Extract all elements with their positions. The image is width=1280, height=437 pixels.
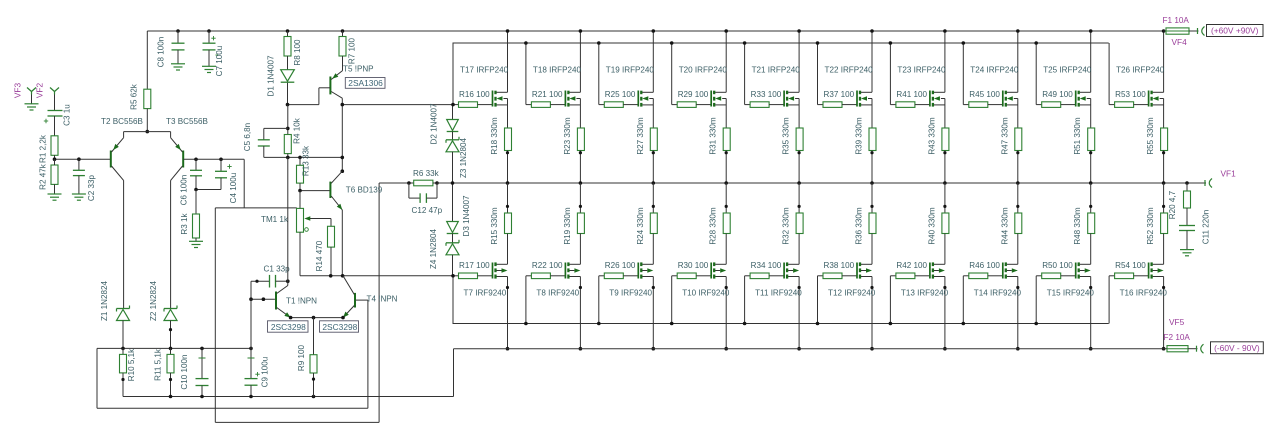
svg-text:T3 BC556B: T3 BC556B (166, 117, 208, 126)
svg-text:R36 330m: R36 330m (855, 207, 864, 245)
svg-text:T15 IRF9240: T15 IRF9240 (1047, 289, 1095, 298)
svg-text:2SC3298: 2SC3298 (322, 322, 357, 332)
svg-text:R5 62k: R5 62k (129, 83, 138, 110)
svg-text:C2 33p: C2 33p (87, 174, 96, 201)
svg-text:R48 330m: R48 330m (1073, 207, 1082, 245)
svg-text:R2 47k: R2 47k (39, 163, 48, 190)
svg-text:R28 330m: R28 330m (709, 207, 718, 245)
svg-text:C5 6,8n: C5 6,8n (243, 123, 252, 151)
svg-text:R41 100: R41 100 (896, 90, 927, 99)
svg-text:T14 IRF9240: T14 IRF9240 (974, 289, 1022, 298)
svg-text:R37 100: R37 100 (824, 90, 855, 99)
svg-text:Z3 1N2804: Z3 1N2804 (459, 137, 468, 178)
svg-text:R14 470: R14 470 (315, 240, 324, 271)
svg-text:T1 !NPN: T1 !NPN (286, 297, 317, 306)
svg-text:R23 330m: R23 330m (563, 117, 572, 155)
svg-text:R16 100: R16 100 (459, 90, 490, 99)
svg-text:T25 IRFP240: T25 IRFP240 (1043, 66, 1092, 75)
svg-text:T10 IRF9240: T10 IRF9240 (682, 289, 730, 298)
svg-text:VF3: VF3 (13, 83, 23, 99)
svg-text:R30 100: R30 100 (678, 261, 709, 270)
svg-text:(+60V +90V): (+60V +90V) (1211, 26, 1259, 36)
svg-text:R40 330m: R40 330m (927, 207, 936, 245)
svg-text:F1 10A: F1 10A (1163, 16, 1190, 25)
svg-text:R49 100: R49 100 (1042, 90, 1073, 99)
svg-text:T8 IRF9240: T8 IRF9240 (536, 289, 579, 298)
svg-text:R55 330m: R55 330m (1146, 117, 1155, 155)
svg-text:R18 330m: R18 330m (490, 117, 499, 155)
svg-text:R42 100: R42 100 (896, 261, 927, 270)
svg-text:R38 100: R38 100 (824, 261, 855, 270)
svg-text:C12 47p: C12 47p (412, 206, 443, 215)
svg-text:R11 5,1k: R11 5,1k (154, 348, 163, 381)
svg-text:T9 IRF9240: T9 IRF9240 (609, 289, 652, 298)
svg-text:R10 5,1k: R10 5,1k (127, 348, 136, 381)
svg-text:R29 100: R29 100 (678, 90, 709, 99)
svg-text:R52 330m: R52 330m (1146, 207, 1155, 245)
svg-text:D3 1N4007: D3 1N4007 (462, 195, 471, 236)
svg-text:T12 IRF9240: T12 IRF9240 (828, 289, 876, 298)
svg-text:T22 IRFP240: T22 IRFP240 (825, 66, 874, 75)
svg-text:R6 33k: R6 33k (413, 169, 440, 178)
svg-text:C11 220n: C11 220n (1202, 210, 1211, 245)
svg-text:R22 100: R22 100 (532, 261, 563, 270)
svg-text:T4 !NPN: T4 !NPN (367, 295, 398, 304)
svg-text:VF1: VF1 (1221, 169, 1237, 179)
svg-text:R21 100: R21 100 (532, 90, 563, 99)
svg-text:R27 330m: R27 330m (636, 117, 645, 155)
svg-text:T16 IRF9240: T16 IRF9240 (1120, 289, 1168, 298)
svg-text:R34 100: R34 100 (751, 261, 782, 270)
svg-text:R43 330m: R43 330m (927, 117, 936, 155)
svg-text:TM1 1k: TM1 1k (261, 215, 289, 224)
svg-text:C1 33p: C1 33p (264, 265, 291, 274)
svg-text:R51 330m: R51 330m (1073, 117, 1082, 155)
svg-text:Z4 1N2804: Z4 1N2804 (429, 228, 438, 269)
svg-text:R46 100: R46 100 (969, 261, 1000, 270)
svg-text:R53 100: R53 100 (1115, 90, 1146, 99)
svg-text:R24 330m: R24 330m (636, 207, 645, 245)
svg-text:C7 100u: C7 100u (215, 46, 224, 77)
svg-text:R44 330m: R44 330m (1000, 207, 1009, 245)
svg-text:VF4: VF4 (1172, 37, 1188, 47)
svg-text:R3 1k: R3 1k (180, 212, 189, 234)
svg-text:Z1 1N2824: Z1 1N2824 (100, 280, 109, 321)
svg-text:C3 1u: C3 1u (63, 104, 72, 126)
svg-text:R1 2,2k: R1 2,2k (39, 134, 48, 163)
svg-text:T18 IRFP240: T18 IRFP240 (533, 66, 582, 75)
svg-text:C6 100n: C6 100n (180, 175, 189, 206)
svg-text:R26 100: R26 100 (605, 261, 636, 270)
svg-text:T24 IRFP240: T24 IRFP240 (970, 66, 1019, 75)
svg-text:Z2 1N2824: Z2 1N2824 (149, 280, 158, 321)
svg-text:R4 10k: R4 10k (293, 117, 302, 144)
svg-text:T11 IRF9240: T11 IRF9240 (755, 289, 802, 298)
svg-text:T13 IRF9240: T13 IRF9240 (901, 289, 949, 298)
svg-text:2SA1306: 2SA1306 (348, 78, 383, 88)
svg-text:R17 100: R17 100 (459, 261, 490, 270)
svg-text:D2 1N4007: D2 1N4007 (430, 103, 439, 144)
svg-text:C10 100n: C10 100n (180, 354, 189, 389)
svg-text:R13 33k: R13 33k (302, 145, 311, 176)
svg-text:T17 IRFP240: T17 IRFP240 (460, 66, 509, 75)
svg-text:R25 100: R25 100 (605, 90, 636, 99)
svg-text:R20 4,7: R20 4,7 (1168, 190, 1177, 219)
svg-text:VF5: VF5 (1169, 317, 1185, 327)
svg-text:R9 100: R9 100 (297, 344, 306, 371)
svg-text:D1 1N4007: D1 1N4007 (267, 55, 276, 96)
svg-text:R39 330m: R39 330m (855, 117, 864, 155)
svg-text:T23 IRFP240: T23 IRFP240 (897, 66, 946, 75)
svg-text:F2 10A: F2 10A (1164, 333, 1191, 342)
svg-text:VF2: VF2 (35, 83, 45, 99)
svg-text:T19 IRFP240: T19 IRFP240 (606, 66, 655, 75)
svg-text:T21 IRFP240: T21 IRFP240 (752, 66, 801, 75)
svg-text:R31 330m: R31 330m (709, 117, 718, 155)
svg-text:R54 100: R54 100 (1115, 261, 1146, 270)
svg-text:C8 100n: C8 100n (157, 37, 166, 68)
svg-text:T6 BD139: T6 BD139 (346, 186, 383, 195)
svg-text:C4 100u: C4 100u (229, 173, 238, 204)
svg-text:R33 100: R33 100 (751, 90, 782, 99)
svg-text:R45 100: R45 100 (969, 90, 1000, 99)
svg-text:R50 100: R50 100 (1042, 261, 1073, 270)
svg-text:R15 330m: R15 330m (490, 207, 499, 245)
svg-text:T2 BC556B: T2 BC556B (101, 117, 143, 126)
svg-text:R47 330m: R47 330m (1000, 117, 1009, 155)
svg-text:T26 IRFP240: T26 IRFP240 (1116, 66, 1165, 75)
svg-text:C9 100u: C9 100u (261, 357, 270, 388)
svg-text:T5 !PNP: T5 !PNP (343, 65, 374, 74)
svg-text:R8 100: R8 100 (293, 39, 302, 66)
svg-text:T20 IRFP240: T20 IRFP240 (679, 66, 728, 75)
svg-text:R19 330m: R19 330m (563, 207, 572, 245)
svg-text:T7 IRF9240: T7 IRF9240 (464, 289, 507, 298)
svg-text:2SC3298: 2SC3298 (271, 322, 306, 332)
svg-text:R35 330m: R35 330m (782, 117, 791, 155)
svg-text:R32 330m: R32 330m (782, 207, 791, 245)
svg-text:R7 100: R7 100 (348, 37, 357, 64)
svg-text:(-60V - 90V): (-60V - 90V) (1214, 343, 1260, 353)
